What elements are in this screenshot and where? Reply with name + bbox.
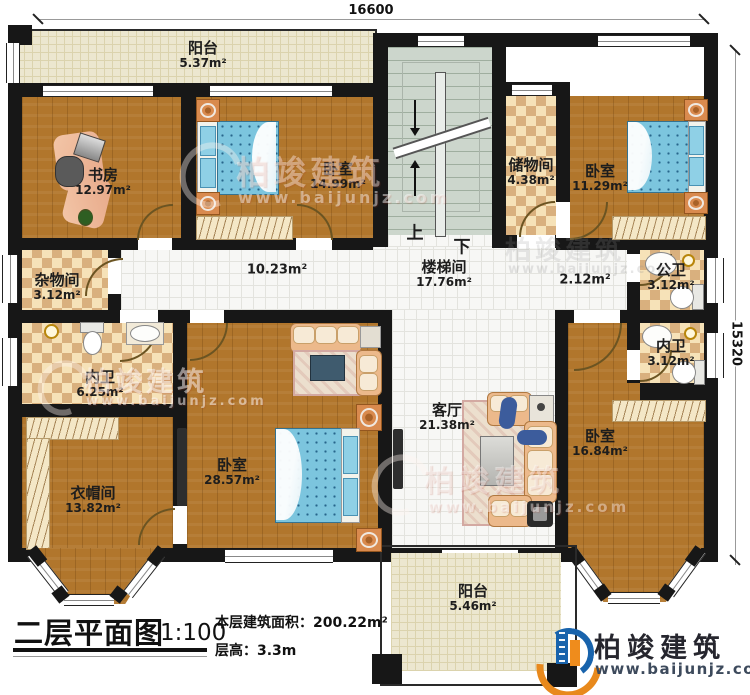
sofa-cushion bbox=[527, 450, 553, 472]
closet-bedroom-ne bbox=[612, 216, 706, 240]
stair-arrow-up-icon bbox=[410, 160, 420, 168]
bed-pillow bbox=[689, 126, 704, 155]
bay-bedroom-se-window-bottom bbox=[608, 592, 660, 604]
balcony-post-left bbox=[372, 654, 402, 684]
window-master-bottom bbox=[225, 549, 333, 563]
window-inner-bath-left bbox=[2, 338, 18, 386]
floor-height-text: 层高：3.3m bbox=[215, 640, 296, 660]
window-stair-top bbox=[418, 35, 464, 47]
room-label-balcony-bottom: 阳台5.46m² bbox=[449, 583, 496, 613]
dimension-right-value: 15320 bbox=[729, 321, 744, 367]
room-label-bedroom-ne: 卧室11.29m² bbox=[572, 163, 628, 193]
wall-stair-right bbox=[492, 33, 506, 247]
stair-up-label: 上 bbox=[407, 224, 424, 243]
plant-icon bbox=[78, 209, 93, 226]
room-label-living: 客厅21.38m² bbox=[419, 402, 475, 432]
sofa-cushion bbox=[293, 326, 315, 344]
bed-pillow bbox=[343, 478, 358, 516]
sofa-cushion bbox=[337, 326, 359, 344]
title-underline bbox=[13, 648, 207, 652]
window-study-balcony bbox=[43, 85, 153, 97]
bed-pillow bbox=[200, 158, 216, 188]
room-label-cloakroom: 衣帽间13.82m² bbox=[65, 485, 121, 515]
room-label-sundry: 杂物间3.12m² bbox=[33, 272, 80, 302]
side-table-top bbox=[533, 507, 547, 521]
stair-arrow-line-up bbox=[414, 168, 416, 196]
bay-cloakroom-window-bottom bbox=[64, 594, 114, 606]
sofa-cushion bbox=[527, 474, 553, 496]
wall-bath-cloak-divider bbox=[8, 404, 187, 417]
dimension-top-value: 16600 bbox=[345, 3, 397, 18]
window-inner-bath-right bbox=[706, 333, 724, 378]
wall-stair-left bbox=[373, 33, 388, 247]
nightstand bbox=[356, 404, 382, 431]
nightstand bbox=[196, 192, 220, 215]
person-figure bbox=[517, 430, 547, 445]
window-public-bath-right bbox=[706, 258, 724, 303]
closet-cloakroom-top bbox=[26, 417, 119, 440]
door-gap-bedroom-ne bbox=[556, 202, 570, 238]
floor-plan: 上 下 bbox=[0, 0, 750, 695]
sink-icon bbox=[130, 325, 160, 342]
door-gap-se-corridor bbox=[574, 310, 620, 323]
sofa-cushion bbox=[491, 500, 510, 517]
sofa-cushion bbox=[359, 373, 378, 391]
nightstand bbox=[196, 99, 220, 122]
stair-arrow-line-down bbox=[414, 100, 416, 128]
nightstand bbox=[356, 528, 382, 552]
window-storage-top bbox=[512, 84, 552, 96]
wall-inner-bath-right-bottom bbox=[640, 383, 718, 400]
master-coffee-table bbox=[310, 355, 345, 381]
room-label-inner-bath-right: 内卫3.12m² bbox=[647, 338, 694, 368]
brand-logo-building2-icon bbox=[570, 640, 580, 666]
room-label-bedroom-se: 卧室16.84m² bbox=[572, 428, 628, 458]
stair-rail bbox=[435, 72, 446, 237]
window-sundry-left bbox=[2, 255, 18, 303]
door-gap-master bbox=[190, 310, 224, 323]
room-label-storage: 储物间4.38m² bbox=[507, 157, 554, 187]
window-bedroom-ne-top bbox=[598, 35, 690, 47]
bed-pillow bbox=[343, 436, 358, 474]
room-label-public-bath: 公卫3.12m² bbox=[647, 262, 694, 292]
room-label-stairwell: 楼梯间17.76m² bbox=[416, 259, 472, 289]
lamp-icon bbox=[537, 403, 545, 411]
nightstand bbox=[684, 99, 708, 121]
door-gap-cloakroom bbox=[173, 506, 187, 544]
corner-table bbox=[360, 326, 381, 348]
closet-cloakroom-left bbox=[26, 438, 50, 550]
living-coffee-table bbox=[480, 436, 514, 486]
page-title: 二层平面图 bbox=[14, 610, 164, 652]
closet-bedroom-top bbox=[196, 216, 293, 240]
shower-icon bbox=[44, 324, 59, 339]
brand-url: www.baijunjz.com bbox=[595, 660, 750, 678]
room-label-hall: 2.12m² bbox=[559, 274, 610, 289]
dimension-line-top bbox=[38, 19, 706, 20]
corridor-floor bbox=[121, 247, 627, 310]
stair-arrow-down-icon bbox=[410, 128, 420, 136]
brand-logo-building-icon bbox=[556, 632, 568, 664]
room-label-bedroom-top: 卧室14.99m² bbox=[310, 161, 366, 191]
sofa-cushion bbox=[315, 326, 337, 344]
stair-down-label: 下 bbox=[454, 238, 471, 257]
room-label-balcony-top: 阳台5.37m² bbox=[179, 40, 226, 70]
sofa-cushion bbox=[359, 355, 378, 373]
door-gap-public-bath bbox=[627, 254, 640, 282]
room-label-study: 书房12.97m² bbox=[75, 167, 131, 197]
wall-study-divider bbox=[181, 97, 196, 238]
tv-icon bbox=[177, 428, 187, 506]
room-label-corridor: 10.23m² bbox=[247, 264, 307, 279]
toilet-icon bbox=[83, 331, 102, 355]
closet-bedroom-se bbox=[612, 400, 706, 422]
tv-icon bbox=[393, 429, 403, 489]
room-label-bedroom-master: 卧室28.57m² bbox=[204, 457, 260, 487]
title-underline-thin bbox=[13, 656, 207, 657]
window-balcony-left bbox=[6, 43, 20, 83]
wall-balcony-corner bbox=[8, 25, 32, 45]
window-bedroom-top-balcony bbox=[210, 85, 332, 97]
nightstand bbox=[684, 192, 708, 214]
bed-pillow bbox=[689, 157, 704, 186]
dimension-line-right bbox=[735, 50, 736, 565]
floor-area-text: 本层建筑面积：200.22m² bbox=[215, 612, 388, 632]
door-gap-inner-bath-right bbox=[627, 350, 640, 380]
bed-pillow bbox=[200, 126, 216, 156]
room-label-inner-bath-left: 内卫6.25m² bbox=[76, 369, 123, 399]
